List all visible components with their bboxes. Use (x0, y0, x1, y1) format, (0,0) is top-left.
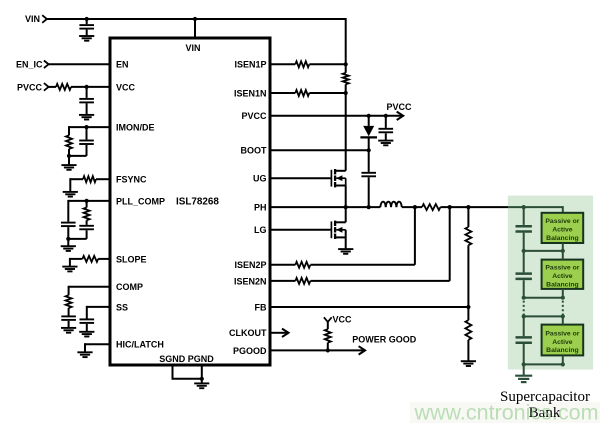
svg-text:VIN: VIN (185, 43, 200, 53)
svg-text:PLL_COMP: PLL_COMP (116, 196, 165, 206)
svg-text:SGND PGND: SGND PGND (159, 354, 214, 364)
svg-text:SS: SS (116, 302, 128, 312)
svg-text:EN_IC: EN_IC (16, 60, 43, 70)
svg-text:ISEN1P: ISEN1P (234, 60, 266, 70)
svg-text:CLKOUT: CLKOUT (229, 328, 267, 338)
svg-text:Passive or: Passive or (545, 218, 579, 225)
svg-text:ISEN2N: ISEN2N (234, 276, 267, 286)
svg-text:Active: Active (552, 227, 573, 234)
svg-text:Active: Active (552, 339, 573, 346)
svg-text:ISEN1N: ISEN1N (234, 88, 267, 98)
svg-text:ISEN2P: ISEN2P (234, 260, 266, 270)
svg-text:SLOPE: SLOPE (116, 254, 147, 264)
svg-text:COMP: COMP (116, 282, 143, 292)
svg-text:PVCC: PVCC (387, 102, 413, 112)
svg-text:Active: Active (552, 273, 573, 280)
svg-text:UG: UG (253, 174, 267, 184)
svg-text:PH: PH (254, 203, 267, 213)
svg-text:PVCC: PVCC (17, 82, 43, 92)
svg-text:Balancing: Balancing (546, 347, 578, 354)
svg-text:ISL78268: ISL78268 (176, 197, 219, 208)
svg-text:VCC: VCC (116, 82, 136, 92)
svg-text:IMON/DE: IMON/DE (116, 123, 155, 133)
svg-text:VCC: VCC (333, 315, 353, 325)
svg-text:FSYNC: FSYNC (116, 175, 147, 185)
svg-text:LG: LG (254, 225, 267, 235)
svg-text:PVCC: PVCC (241, 111, 267, 121)
svg-text:Passive or: Passive or (545, 265, 579, 272)
svg-text:EN: EN (116, 60, 129, 70)
svg-text:PGOOD: PGOOD (233, 346, 267, 356)
svg-text:VIN: VIN (25, 14, 40, 24)
svg-text:Balancing: Balancing (546, 235, 578, 242)
svg-text:HIC/LATCH: HIC/LATCH (116, 340, 164, 350)
svg-text:BOOT: BOOT (241, 146, 268, 156)
svg-text:FB: FB (255, 302, 267, 312)
svg-text:Passive or: Passive or (545, 330, 579, 337)
svg-text:Balancing: Balancing (546, 282, 578, 289)
svg-text:POWER GOOD: POWER GOOD (352, 335, 417, 345)
svg-text:www.cntronics.com: www.cntronics.com (414, 401, 599, 425)
